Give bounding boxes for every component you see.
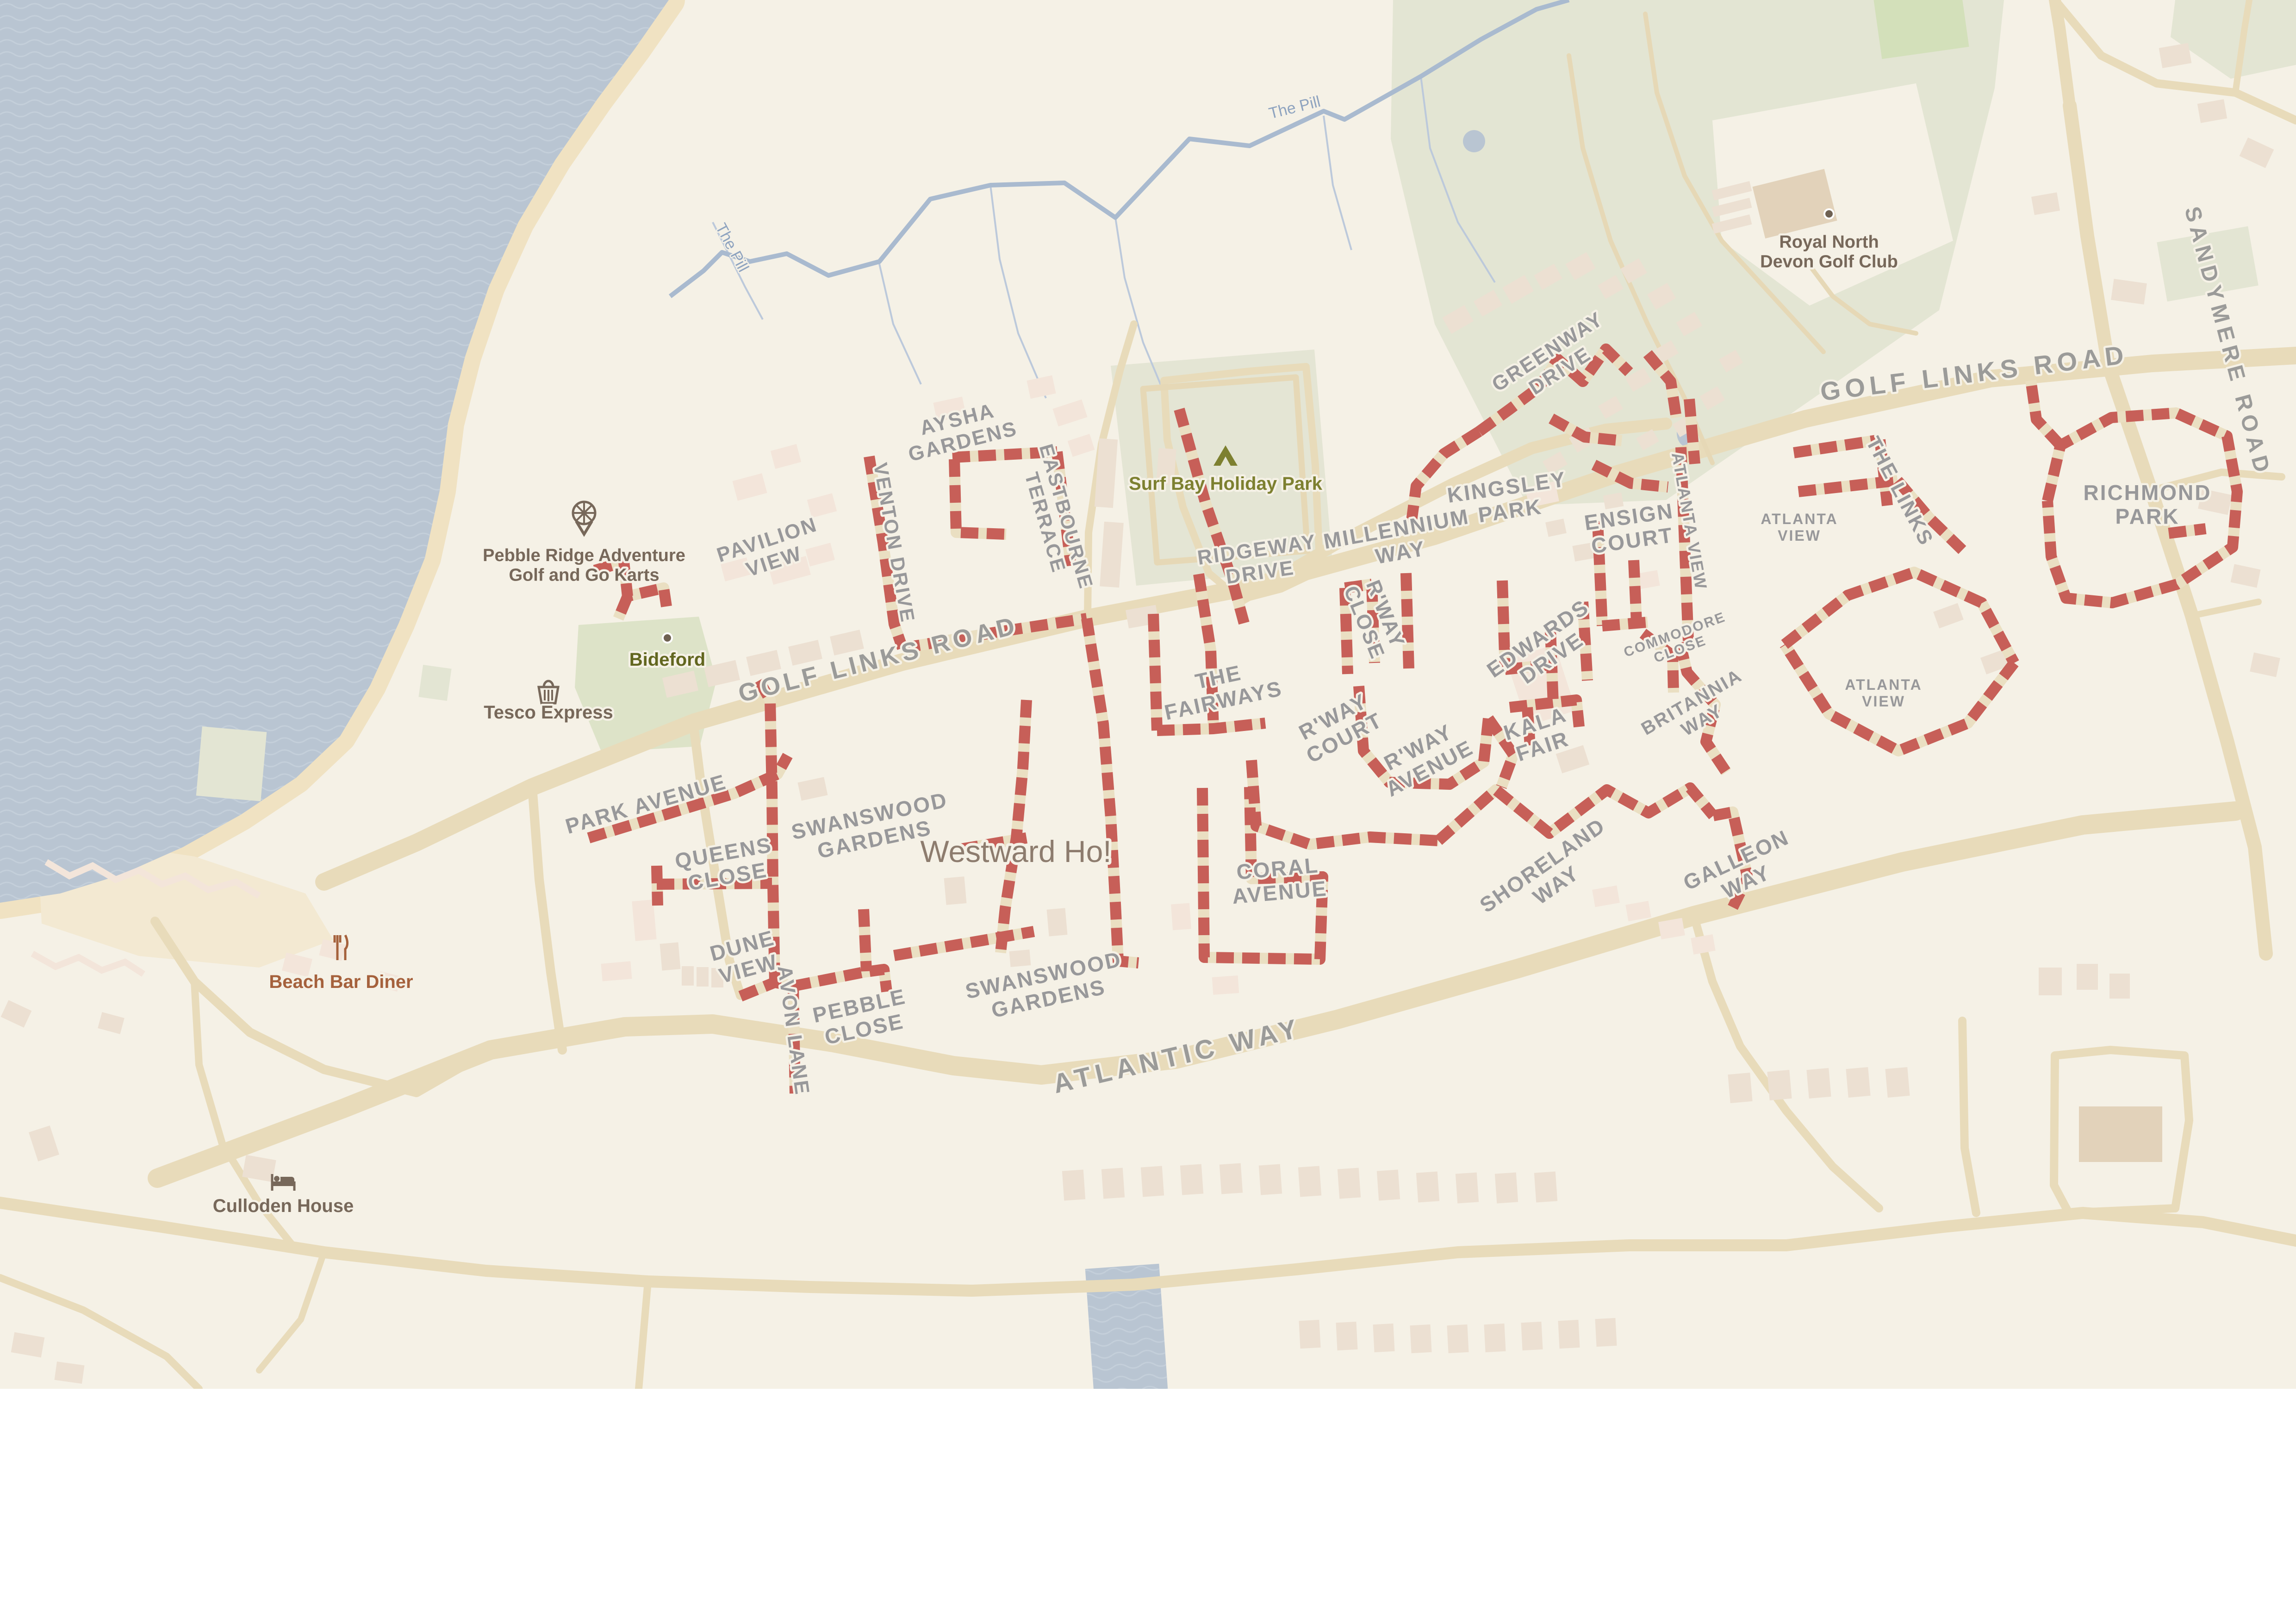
building xyxy=(1484,1324,1506,1352)
building xyxy=(2109,974,2130,999)
building xyxy=(601,961,632,981)
map-label: Tesco Express xyxy=(484,702,613,723)
santa-route-segment xyxy=(1634,560,1636,622)
santa-route-segment xyxy=(864,909,866,971)
building xyxy=(1047,908,1068,936)
green-area xyxy=(196,726,267,801)
building xyxy=(1062,1169,1085,1200)
map-label: Culloden House xyxy=(213,1196,354,1216)
building xyxy=(944,876,967,905)
building xyxy=(1806,1068,1831,1099)
building xyxy=(682,966,694,986)
building xyxy=(1885,1067,1910,1098)
building xyxy=(1534,1171,1557,1202)
building xyxy=(1009,949,1031,967)
building xyxy=(1558,1320,1580,1349)
map-canvas: The PillThe PillRoyal NorthDevon Golf Cl… xyxy=(0,0,2296,1389)
building xyxy=(1521,1322,1543,1350)
map-label: Pebble Ridge AdventureGolf and Go Karts xyxy=(483,546,685,585)
building xyxy=(2039,968,2062,995)
hub xyxy=(581,510,587,516)
building xyxy=(1212,975,1239,995)
building xyxy=(1180,1164,1203,1195)
building xyxy=(1377,1169,1400,1200)
building xyxy=(1410,1324,1431,1353)
building xyxy=(2079,1106,2162,1162)
footer: BIDEFORD ROUND TABLE 328 bideford-round-… xyxy=(0,1389,2296,1624)
duvet xyxy=(280,1177,294,1181)
building xyxy=(1141,1166,1164,1197)
building xyxy=(660,942,681,970)
building xyxy=(1220,1163,1243,1194)
building xyxy=(1447,1324,1468,1353)
pillow-head xyxy=(274,1176,280,1181)
building xyxy=(1373,1324,1394,1352)
building xyxy=(1416,1171,1439,1202)
map: The PillThe PillRoyal NorthDevon Golf Cl… xyxy=(0,0,2296,1389)
place-dot-icon xyxy=(1824,209,1834,219)
building xyxy=(1595,1318,1617,1347)
building xyxy=(1299,1320,1320,1349)
place-dot-icon xyxy=(663,633,672,643)
building xyxy=(1728,1073,1752,1103)
green-area xyxy=(418,665,451,701)
building xyxy=(1456,1172,1479,1203)
building xyxy=(55,1362,85,1384)
place-dot xyxy=(1824,209,1834,219)
building xyxy=(1846,1067,1870,1098)
poster-page: The PillThe PillRoyal NorthDevon Golf Cl… xyxy=(0,0,2296,1624)
building xyxy=(1495,1172,1518,1203)
map-label: Royal NorthDevon Golf Club xyxy=(1760,232,1898,272)
building xyxy=(1767,1070,1792,1100)
map-label: Bideford xyxy=(629,650,705,670)
map-label: Surf Bay Holiday Park xyxy=(1129,474,1323,494)
building xyxy=(697,967,709,987)
bed-frame xyxy=(272,1181,294,1186)
map-label: CORALAVENUE xyxy=(1229,852,1329,908)
santa-route-segment xyxy=(1689,399,1695,464)
map-label: Beach Bar Diner xyxy=(269,972,413,992)
map-label: Westward Ho! xyxy=(920,834,1111,868)
building xyxy=(1338,1168,1361,1199)
place-dot xyxy=(663,633,672,643)
building xyxy=(1336,1322,1357,1350)
building xyxy=(1101,1168,1125,1199)
building xyxy=(2077,964,2098,990)
building xyxy=(1298,1166,1321,1197)
pond xyxy=(1463,130,1485,152)
building xyxy=(1171,903,1191,931)
building xyxy=(1259,1164,1282,1195)
building xyxy=(632,899,656,941)
